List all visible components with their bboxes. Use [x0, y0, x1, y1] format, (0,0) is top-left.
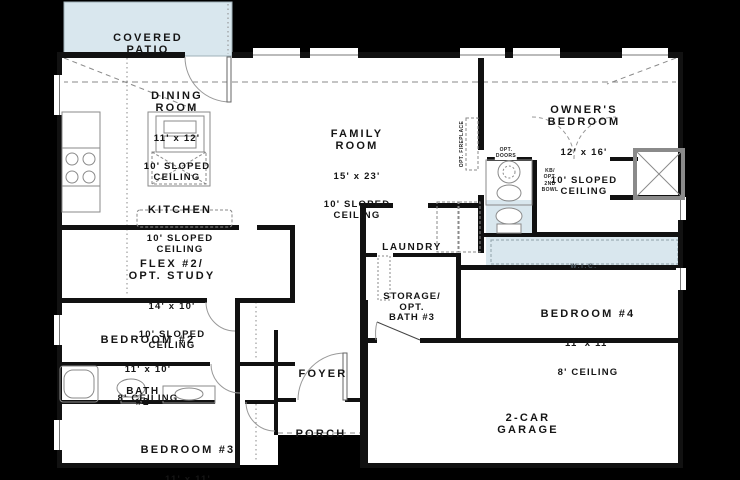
floor-plan-drawing [0, 0, 740, 480]
wic-area [486, 237, 683, 267]
floor-plan-page: COVERED PATIO DINING ROOM 11' x 12' 10' … [0, 0, 740, 480]
toilet [496, 208, 522, 224]
covered-patio-area [64, 2, 232, 56]
